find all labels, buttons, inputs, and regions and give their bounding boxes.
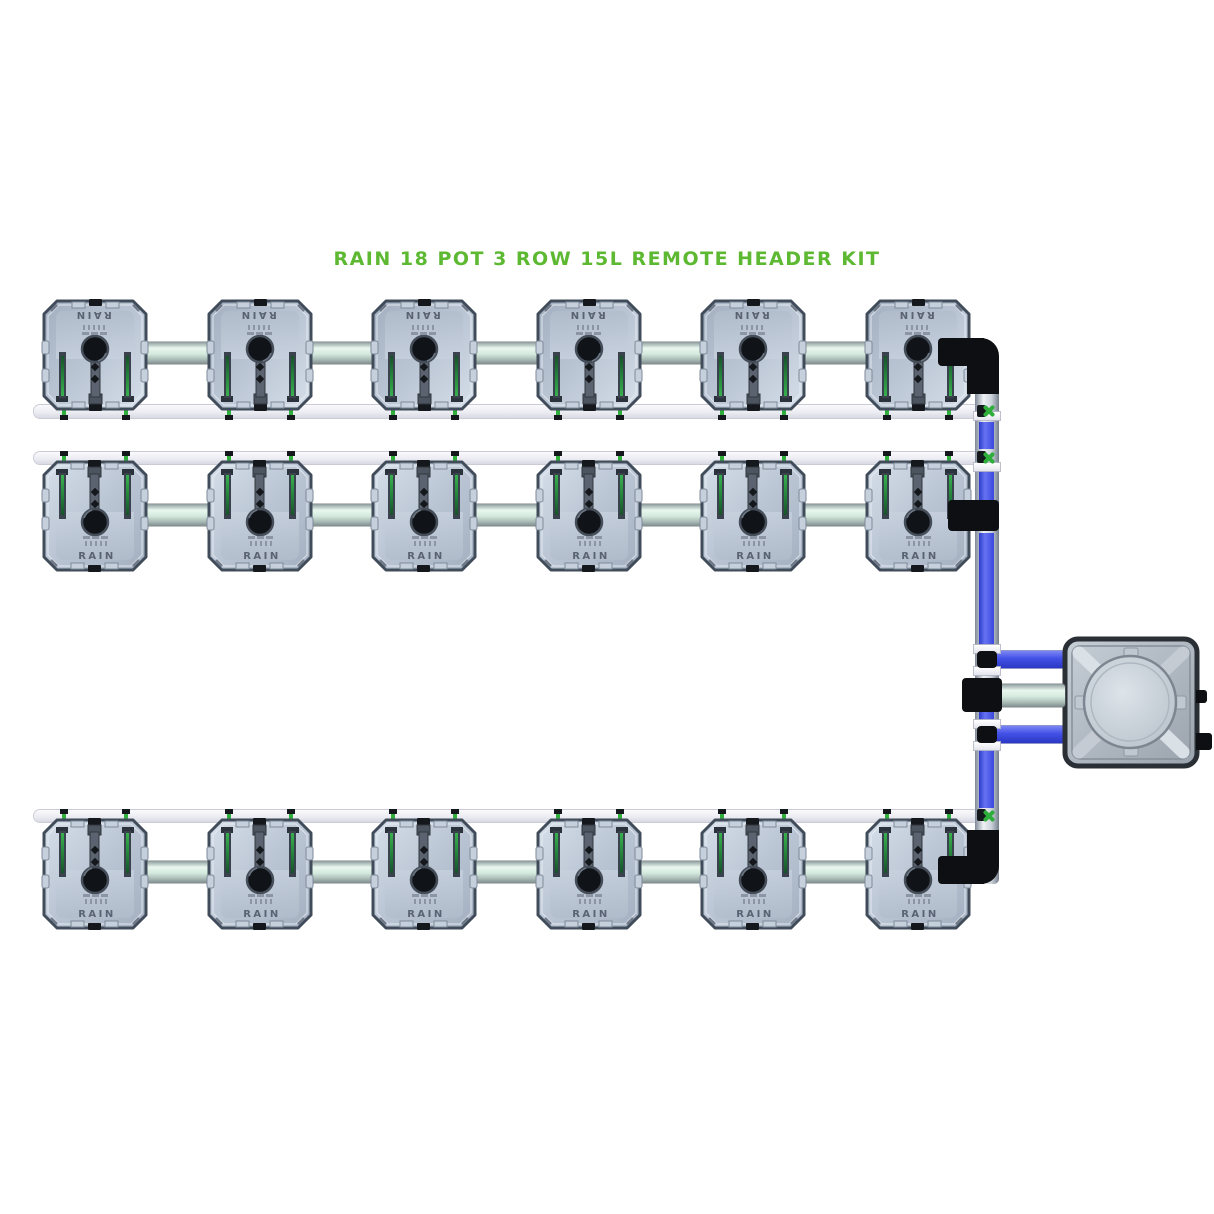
pot-graphic: RAIN [371,818,477,930]
branch-fitting-upper [977,651,997,668]
silver-manifold-pipe-row-2 [60,504,952,526]
pot-row-2-pot-3: RAIN [371,460,477,572]
pot-label: RAIN [568,309,606,320]
vertical-blue-feed-segment [979,533,994,646]
green-drip-connector-row-3 [981,808,997,824]
blue-feed-pipe-to-tank-upper [990,651,1064,668]
pot-graphic: RAIN [42,460,148,572]
pot-label: RAIN [403,309,441,320]
elbow-fitting-top-corner [967,338,999,394]
white-drip-pipe-row-1 [34,405,986,418]
branch-fitting-lower [977,726,997,743]
pot-row-3-pot-4: RAIN [536,818,642,930]
pot-label: RAIN [78,909,116,920]
pot-label: RAIN [901,551,939,562]
pot-graphic: RAIN [371,299,477,411]
silver-return-pipe-to-tank [999,684,1065,707]
pot-label: RAIN [736,909,774,920]
pot-row-3-pot-5: RAIN [700,818,806,930]
tee-fitting-row-2 [948,500,999,531]
pot-label: RAIN [243,909,281,920]
cross-fitting-tank [962,678,1002,712]
white-drip-pipe-row-3 [34,810,986,822]
green-drip-connector-row-1 [981,403,997,419]
kit-diagram: RAIN 18 POT 3 ROW 15L REMOTE HEADER KIT [0,0,1214,1214]
silver-manifold-pipe-row-1 [60,342,940,364]
green-drip-connector-row-2 [981,450,997,466]
tank-port-small [1196,690,1207,703]
pipe-collar [974,742,1000,750]
pot-row-2-pot-2: RAIN [207,460,313,572]
pot-row-2-pot-1: RAIN [42,460,148,572]
pot-row-1-pot-3: RAIN [371,299,477,411]
pot-row-1-pot-4: RAIN [536,299,642,411]
pot-label: RAIN [732,309,770,320]
remote-header-tank [1062,636,1200,769]
elbow-fitting-bottom-corner [967,830,999,884]
pot-graphic: RAIN [536,818,642,930]
pot-label: RAIN [239,309,277,320]
header-tank-graphic [1062,636,1200,769]
pot-row-1-pot-2: RAIN [207,299,313,411]
pot-label: RAIN [901,909,939,920]
kit-title: RAIN 18 POT 3 ROW 15L REMOTE HEADER KIT [0,248,1214,270]
pot-graphic: RAIN [536,299,642,411]
pot-graphic: RAIN [700,460,806,572]
pot-graphic: RAIN [700,299,806,411]
pot-label: RAIN [897,309,935,320]
pot-row-1-pot-5: RAIN [700,299,806,411]
pot-row-3-pot-1: RAIN [42,818,148,930]
pot-label: RAIN [572,551,610,562]
pot-row-2-pot-5: RAIN [700,460,806,572]
pot-graphic: RAIN [536,460,642,572]
pot-row-3-pot-3: RAIN [371,818,477,930]
pot-label: RAIN [572,909,610,920]
blue-feed-pipe-to-tank-lower [990,726,1064,743]
pot-graphic: RAIN [42,818,148,930]
vertical-blue-feed-segment [979,750,994,808]
pot-label: RAIN [243,551,281,562]
pot-row-2-pot-4: RAIN [536,460,642,572]
pot-label: RAIN [78,551,116,562]
vertical-blue-feed-segment [979,422,994,449]
pot-row-1-pot-1: RAIN [42,299,148,411]
pot-label: RAIN [74,309,112,320]
pot-label: RAIN [736,551,774,562]
white-drip-pipe-row-2 [34,452,986,464]
pot-graphic: RAIN [371,460,477,572]
silver-manifold-pipe-row-3 [60,861,940,883]
pipe-collar [974,667,1000,675]
pot-graphic: RAIN [207,460,313,572]
pot-label: RAIN [407,551,445,562]
tank-port-large [1196,733,1212,750]
pot-graphic: RAIN [42,299,148,411]
pot-graphic: RAIN [207,299,313,411]
pot-graphic: RAIN [700,818,806,930]
vertical-blue-feed-segment [979,471,994,500]
pot-graphic: RAIN [207,818,313,930]
pot-label: RAIN [407,909,445,920]
pot-row-3-pot-2: RAIN [207,818,313,930]
